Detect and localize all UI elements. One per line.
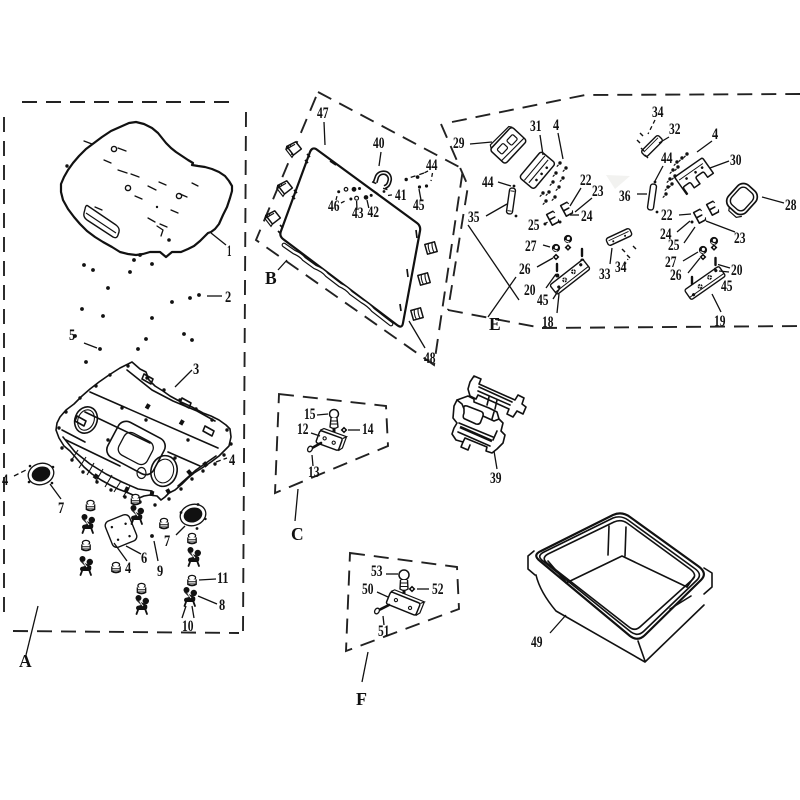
svg-text:36: 36: [619, 188, 631, 205]
svg-text:3: 3: [193, 361, 199, 378]
svg-text:46: 46: [328, 198, 340, 215]
svg-text:29: 29: [453, 135, 465, 152]
svg-text:44: 44: [482, 174, 494, 191]
svg-text:33: 33: [599, 266, 611, 283]
svg-text:25: 25: [528, 217, 540, 234]
svg-text:50: 50: [362, 581, 374, 598]
svg-text:42: 42: [368, 204, 380, 221]
svg-text:9: 9: [157, 563, 163, 580]
svg-text:5: 5: [69, 327, 75, 344]
svg-text:12: 12: [297, 421, 309, 438]
svg-text:53: 53: [371, 563, 383, 580]
svg-text:44: 44: [661, 150, 673, 167]
svg-text:2: 2: [225, 289, 231, 306]
svg-text:34: 34: [615, 259, 627, 276]
svg-text:51: 51: [378, 623, 390, 640]
svg-text:4: 4: [712, 126, 718, 143]
svg-text:45: 45: [721, 278, 733, 295]
svg-text:4: 4: [229, 452, 235, 469]
svg-text:31: 31: [530, 118, 542, 135]
svg-text:28: 28: [785, 197, 797, 214]
svg-text:45: 45: [413, 197, 425, 214]
svg-text:4: 4: [2, 472, 8, 489]
svg-text:22: 22: [661, 207, 673, 224]
svg-text:6: 6: [141, 550, 147, 567]
svg-text:26: 26: [519, 261, 531, 278]
svg-text:22: 22: [580, 172, 592, 189]
svg-text:4: 4: [125, 560, 131, 577]
svg-text:B: B: [265, 268, 277, 288]
svg-text:40: 40: [373, 135, 385, 152]
svg-text:43: 43: [352, 205, 364, 222]
svg-text:32: 32: [669, 121, 681, 138]
svg-text:8: 8: [219, 597, 225, 614]
svg-text:4: 4: [553, 117, 559, 134]
svg-text:E: E: [489, 314, 501, 334]
svg-text:24: 24: [581, 208, 593, 225]
svg-text:C: C: [291, 524, 304, 544]
svg-text:A: A: [19, 651, 32, 671]
svg-text:41: 41: [395, 187, 407, 204]
svg-text:7: 7: [58, 500, 64, 517]
svg-text:23: 23: [734, 230, 746, 247]
svg-text:47: 47: [317, 105, 329, 122]
svg-text:F: F: [356, 689, 367, 709]
svg-text:30: 30: [730, 152, 742, 169]
svg-text:23: 23: [592, 183, 604, 200]
svg-text:52: 52: [432, 581, 444, 598]
svg-text:25: 25: [668, 237, 680, 254]
svg-text:49: 49: [531, 634, 543, 651]
svg-text:14: 14: [362, 421, 374, 438]
svg-text:48: 48: [424, 350, 436, 367]
svg-text:18: 18: [542, 314, 554, 331]
svg-text:34: 34: [652, 104, 664, 121]
svg-text:45: 45: [537, 292, 549, 309]
svg-text:13: 13: [308, 464, 320, 481]
svg-text:7: 7: [164, 533, 170, 550]
svg-text:26: 26: [670, 267, 682, 284]
svg-text:20: 20: [524, 282, 536, 299]
svg-text:1: 1: [227, 243, 232, 260]
svg-text:27: 27: [525, 238, 537, 255]
svg-text:11: 11: [217, 570, 229, 587]
svg-text:35: 35: [468, 209, 480, 226]
svg-text:39: 39: [490, 470, 502, 487]
svg-text:19: 19: [714, 313, 726, 330]
svg-text:10: 10: [182, 618, 194, 635]
svg-text:20: 20: [731, 262, 743, 279]
